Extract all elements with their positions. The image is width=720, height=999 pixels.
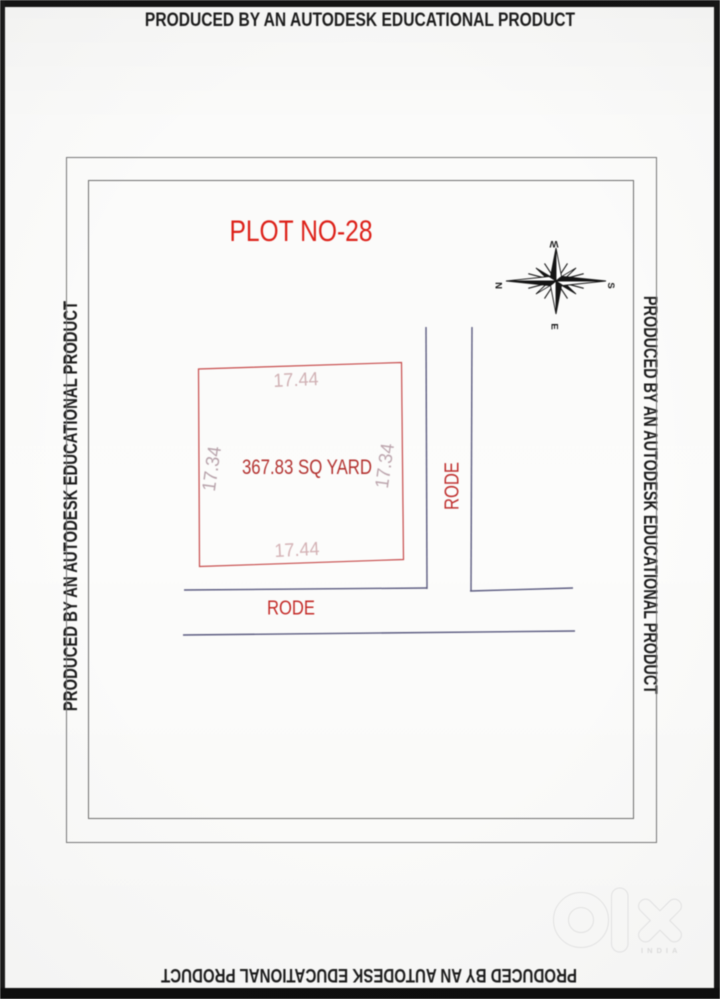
svg-text:W: W (549, 238, 558, 249)
svg-text:INDIA: INDIA (641, 946, 681, 955)
svg-text:N: N (492, 282, 503, 289)
svg-text:S: S (605, 282, 616, 288)
